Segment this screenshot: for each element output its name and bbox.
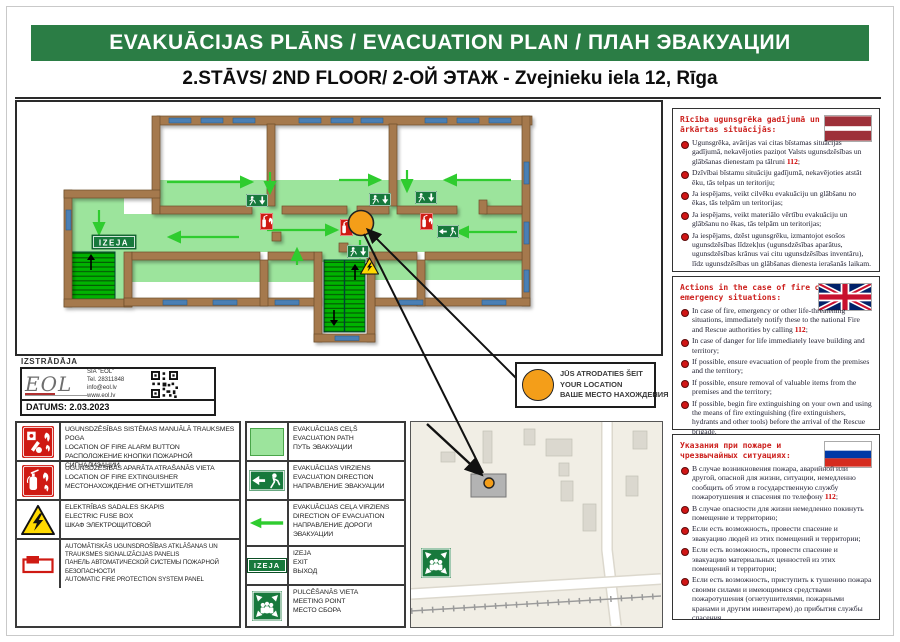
izeja-sign: IZEJA	[92, 235, 136, 249]
legend-text: DIRECTION OF EVACUATION	[293, 513, 400, 522]
plan-date: DATUMS: 2.03.2023	[22, 401, 214, 414]
developer-label: IZSTRĀDĀJA	[21, 357, 78, 366]
legend-text: EXIT	[293, 559, 317, 568]
developer-phone: Tel. 28311848	[87, 376, 151, 384]
instruction-item: Ja iespējams, dzēst ugunsgrēku, izmantoj…	[680, 231, 872, 269]
instruction-item: Если есть возможность, приступить к туше…	[680, 575, 872, 622]
legend-text: PULCĒŠANĀS VIETA	[293, 589, 358, 598]
location-line-ru: ВАШЕ МЕСТО НАХОЖДЕНИЯ	[560, 390, 669, 401]
legend-row-alarm-button: UGUNSDZĒSĪBAS SISTĒMAS MANUĀLĀ TRAUKSMES…	[17, 423, 239, 462]
legend-text: МЕСТОНАХОЖДЕНИЕ ОГНЕТУШИТЕЛЯ	[65, 483, 215, 492]
qr-code	[151, 371, 178, 398]
site-map-panel	[410, 421, 663, 628]
izeja-sign-label: IZEJA	[99, 239, 129, 248]
instructions-list-lv: Ugunsgrēka, avārijas vai citas bīstamas …	[680, 138, 872, 268]
legend-text: EVACUATION DIRECTION	[293, 474, 384, 483]
evacuation-plan-poster: EVAKUĀCIJAS PLĀNS / EVACUATION PLAN / ПЛ…	[0, 0, 900, 642]
developer-box: EOL SIA "EOL" Tel. 28311848 info@eol.lv …	[20, 367, 216, 416]
map-location-dot	[484, 478, 494, 488]
legend-text: IZEJA	[293, 550, 317, 559]
instruction-item: Если есть возможность, провести спасение…	[680, 524, 872, 543]
instruction-item: В случае возникновения пожара, аварийной…	[680, 464, 872, 502]
location-line-lv: JŪS ATRODATIES ŠEIT	[560, 369, 669, 380]
legend-evacuation: EVAKUĀCIJAS CEĻŠ EVACUATION PATH ПУТЬ ЭВ…	[245, 421, 406, 628]
legend-text: ПАНЕЛЬ АВТОМАТИЧЕСКОЙ СИСТЕМЫ ПОЖАРНОЙ Б…	[65, 559, 235, 575]
instruction-item: В случае опасности для жизни немедленно …	[680, 504, 872, 523]
developer-contact: SIA "EOL" Tel. 28311848 info@eol.lv www.…	[87, 368, 151, 400]
legend-text: МЕСТО СБОРА	[293, 607, 358, 616]
eol-logo: EOL	[25, 373, 87, 396]
instruction-item: In case of fire, emergency or other life…	[680, 306, 872, 334]
evacuation-direction-icon	[249, 470, 285, 491]
electric-warning-icon	[20, 504, 56, 536]
izeja-exit-sign-icon: IZEJA	[247, 558, 287, 573]
instruction-item: If possible, ensure evacuation of people…	[680, 357, 872, 376]
instruction-item: Ja iespējams, veikt materiālo vērtību ev…	[680, 210, 872, 229]
legend-row-meeting-point: PULCĒŠANĀS VIETA MEETING POINT МЕСТО СБО…	[247, 586, 404, 626]
legend-row-direction-arrow: EVAKUĀCIJAS CEĻA VIRZIENS DIRECTION OF E…	[247, 501, 404, 547]
instructions-latvian: Rīcība ugunsgrēka gadījumā un ārkārtas s…	[672, 108, 880, 272]
legend-text: LOCATION OF FIRE ALARM BUTTON	[65, 444, 235, 453]
legend-text: EVACUATION PATH	[293, 435, 357, 444]
you-are-here-marker	[349, 211, 374, 236]
legend-text: UGUNSDZĒSĪBAS APARĀTA ATRAŠANĀS VIETA	[65, 465, 215, 474]
instruction-item: If possible, begin fire extinguishing on…	[680, 399, 872, 437]
page-title: EVAKUĀCIJAS PLĀNS / EVACUATION PLAN / ПЛ…	[31, 25, 869, 61]
location-line-en: YOUR LOCATION	[560, 380, 669, 391]
location-dot-icon	[522, 369, 554, 401]
instruction-item: Если есть возможность, провести спасение…	[680, 545, 872, 573]
instructions-title-lv: Rīcība ugunsgrēka gadījumā un ārkārtas s…	[680, 115, 826, 135]
instruction-item: Ja iespējams, veikt cilvēku evakuāciju u…	[680, 189, 872, 208]
stairs-left	[67, 252, 115, 299]
legend-row-path: EVAKUĀCIJAS CEĻŠ EVACUATION PATH ПУТЬ ЭВ…	[247, 423, 404, 462]
legend-fire-equipment: UGUNSDZĒSĪBAS SISTĒMAS MANUĀLĀ TRAUKSMES…	[15, 421, 241, 628]
site-map	[411, 422, 661, 626]
your-location-box: JŪS ATRODATIES ŠEIT YOUR LOCATION ВАШЕ М…	[515, 362, 656, 408]
instructions-russian: Указания при пожаре и чрезвычайных ситуа…	[672, 434, 880, 620]
direction-arrow-icon	[248, 516, 286, 530]
legend-text: UGUNSDZĒSĪBAS SISTĒMAS MANUĀLĀ TRAUKSMES…	[65, 426, 235, 444]
evacuation-path-swatch	[250, 428, 284, 456]
legend-row-fire-panel: AUTOMĀTISKĀS UGUNSDROŠĪBAS ATKLĀŠANAS UN…	[17, 540, 239, 588]
page-subtitle: 2.STĀVS/ 2ND FLOOR/ 2-ОЙ ЭТАЖ - Zvejniek…	[31, 62, 869, 96]
legend-text: LOCATION OF FIRE EXTINGUISHER	[65, 474, 215, 483]
meeting-point-icon	[252, 591, 282, 621]
legend-text: ELECTRIC FUSE BOX	[65, 513, 164, 522]
legend-row-direction-sign: EVAKUĀCIJAS VIRZIENS EVACUATION DIRECTIO…	[247, 462, 404, 501]
legend-text: ELEKTRĪBAS SADALES SKAPIS	[65, 504, 164, 513]
instruction-item: Ugunsgrēka, avārijas vai citas bīstamas …	[680, 138, 872, 166]
floor-plan: IZEJA	[17, 102, 661, 354]
legend-text: НАПРАВЛЕНИЕ ДОРОГИ ЭВАКУАЦИИ	[293, 522, 400, 540]
legend-text: НАПРАВЛЕНИЕ ЭВАКУАЦИИ	[293, 483, 384, 492]
instructions-title-ru: Указания при пожаре и чрезвычайных ситуа…	[680, 441, 826, 461]
legend-row-extinguisher: UGUNSDZĒSĪBAS APARĀTA ATRAŠANĀS VIETA LO…	[17, 462, 239, 501]
stairs-central	[324, 260, 365, 332]
legend-row-exit: IZEJA IZEJA EXIT ВЫХОД	[247, 547, 404, 586]
instructions-title-en: Actions in the case of fire or emergency…	[680, 283, 826, 303]
fire-panel-icon	[21, 554, 55, 574]
developer-company: SIA "EOL"	[87, 368, 151, 376]
instructions-list-en: In case of fire, emergency or other life…	[680, 306, 872, 436]
divider-line	[15, 97, 881, 99]
instructions-list-ru: В случае возникновения пожара, аварийной…	[680, 464, 872, 623]
legend-text: MEETING POINT	[293, 598, 358, 607]
legend-text: EVAKUĀCIJAS CEĻA VIRZIENS	[293, 504, 400, 513]
legend-text: ШКАФ ЭЛЕКТРОЩИТОВОЙ	[65, 522, 164, 531]
instruction-item: Dzīvībai bīstamu situāciju gadījumā, nek…	[680, 168, 872, 187]
legend-text: EVAKUĀCIJAS VIRZIENS	[293, 465, 384, 474]
legend-row-fuse-box: ELEKTRĪBAS SADALES SKAPIS ELECTRIC FUSE …	[17, 501, 239, 540]
legend-text: AUTOMATIC FIRE PROTECTION SYSTEM PANEL	[65, 576, 235, 584]
legend-text: ПУТЬ ЭВАКУАЦИИ	[293, 444, 357, 453]
instruction-item: If possible, ensure removal of valuable …	[680, 378, 872, 397]
developer-website: www.eol.lv	[87, 392, 151, 400]
legend-text: EVAKUĀCIJAS CEĻŠ	[293, 426, 357, 435]
map-meeting-point-icon	[421, 548, 451, 578]
fire-alarm-button-icon	[22, 426, 54, 458]
fire-extinguisher-icon	[22, 465, 54, 497]
developer-email: info@eol.lv	[87, 384, 151, 392]
legend-text: ВЫХОД	[293, 568, 317, 577]
legend-text: AUTOMĀTISKĀS UGUNSDROŠĪBAS ATKLĀŠANAS UN…	[65, 543, 235, 559]
instruction-item: In case of danger for life immediately l…	[680, 336, 872, 355]
floor-plan-panel: IZEJA	[15, 100, 663, 356]
instructions-english: Actions in the case of fire or emergency…	[672, 276, 880, 430]
